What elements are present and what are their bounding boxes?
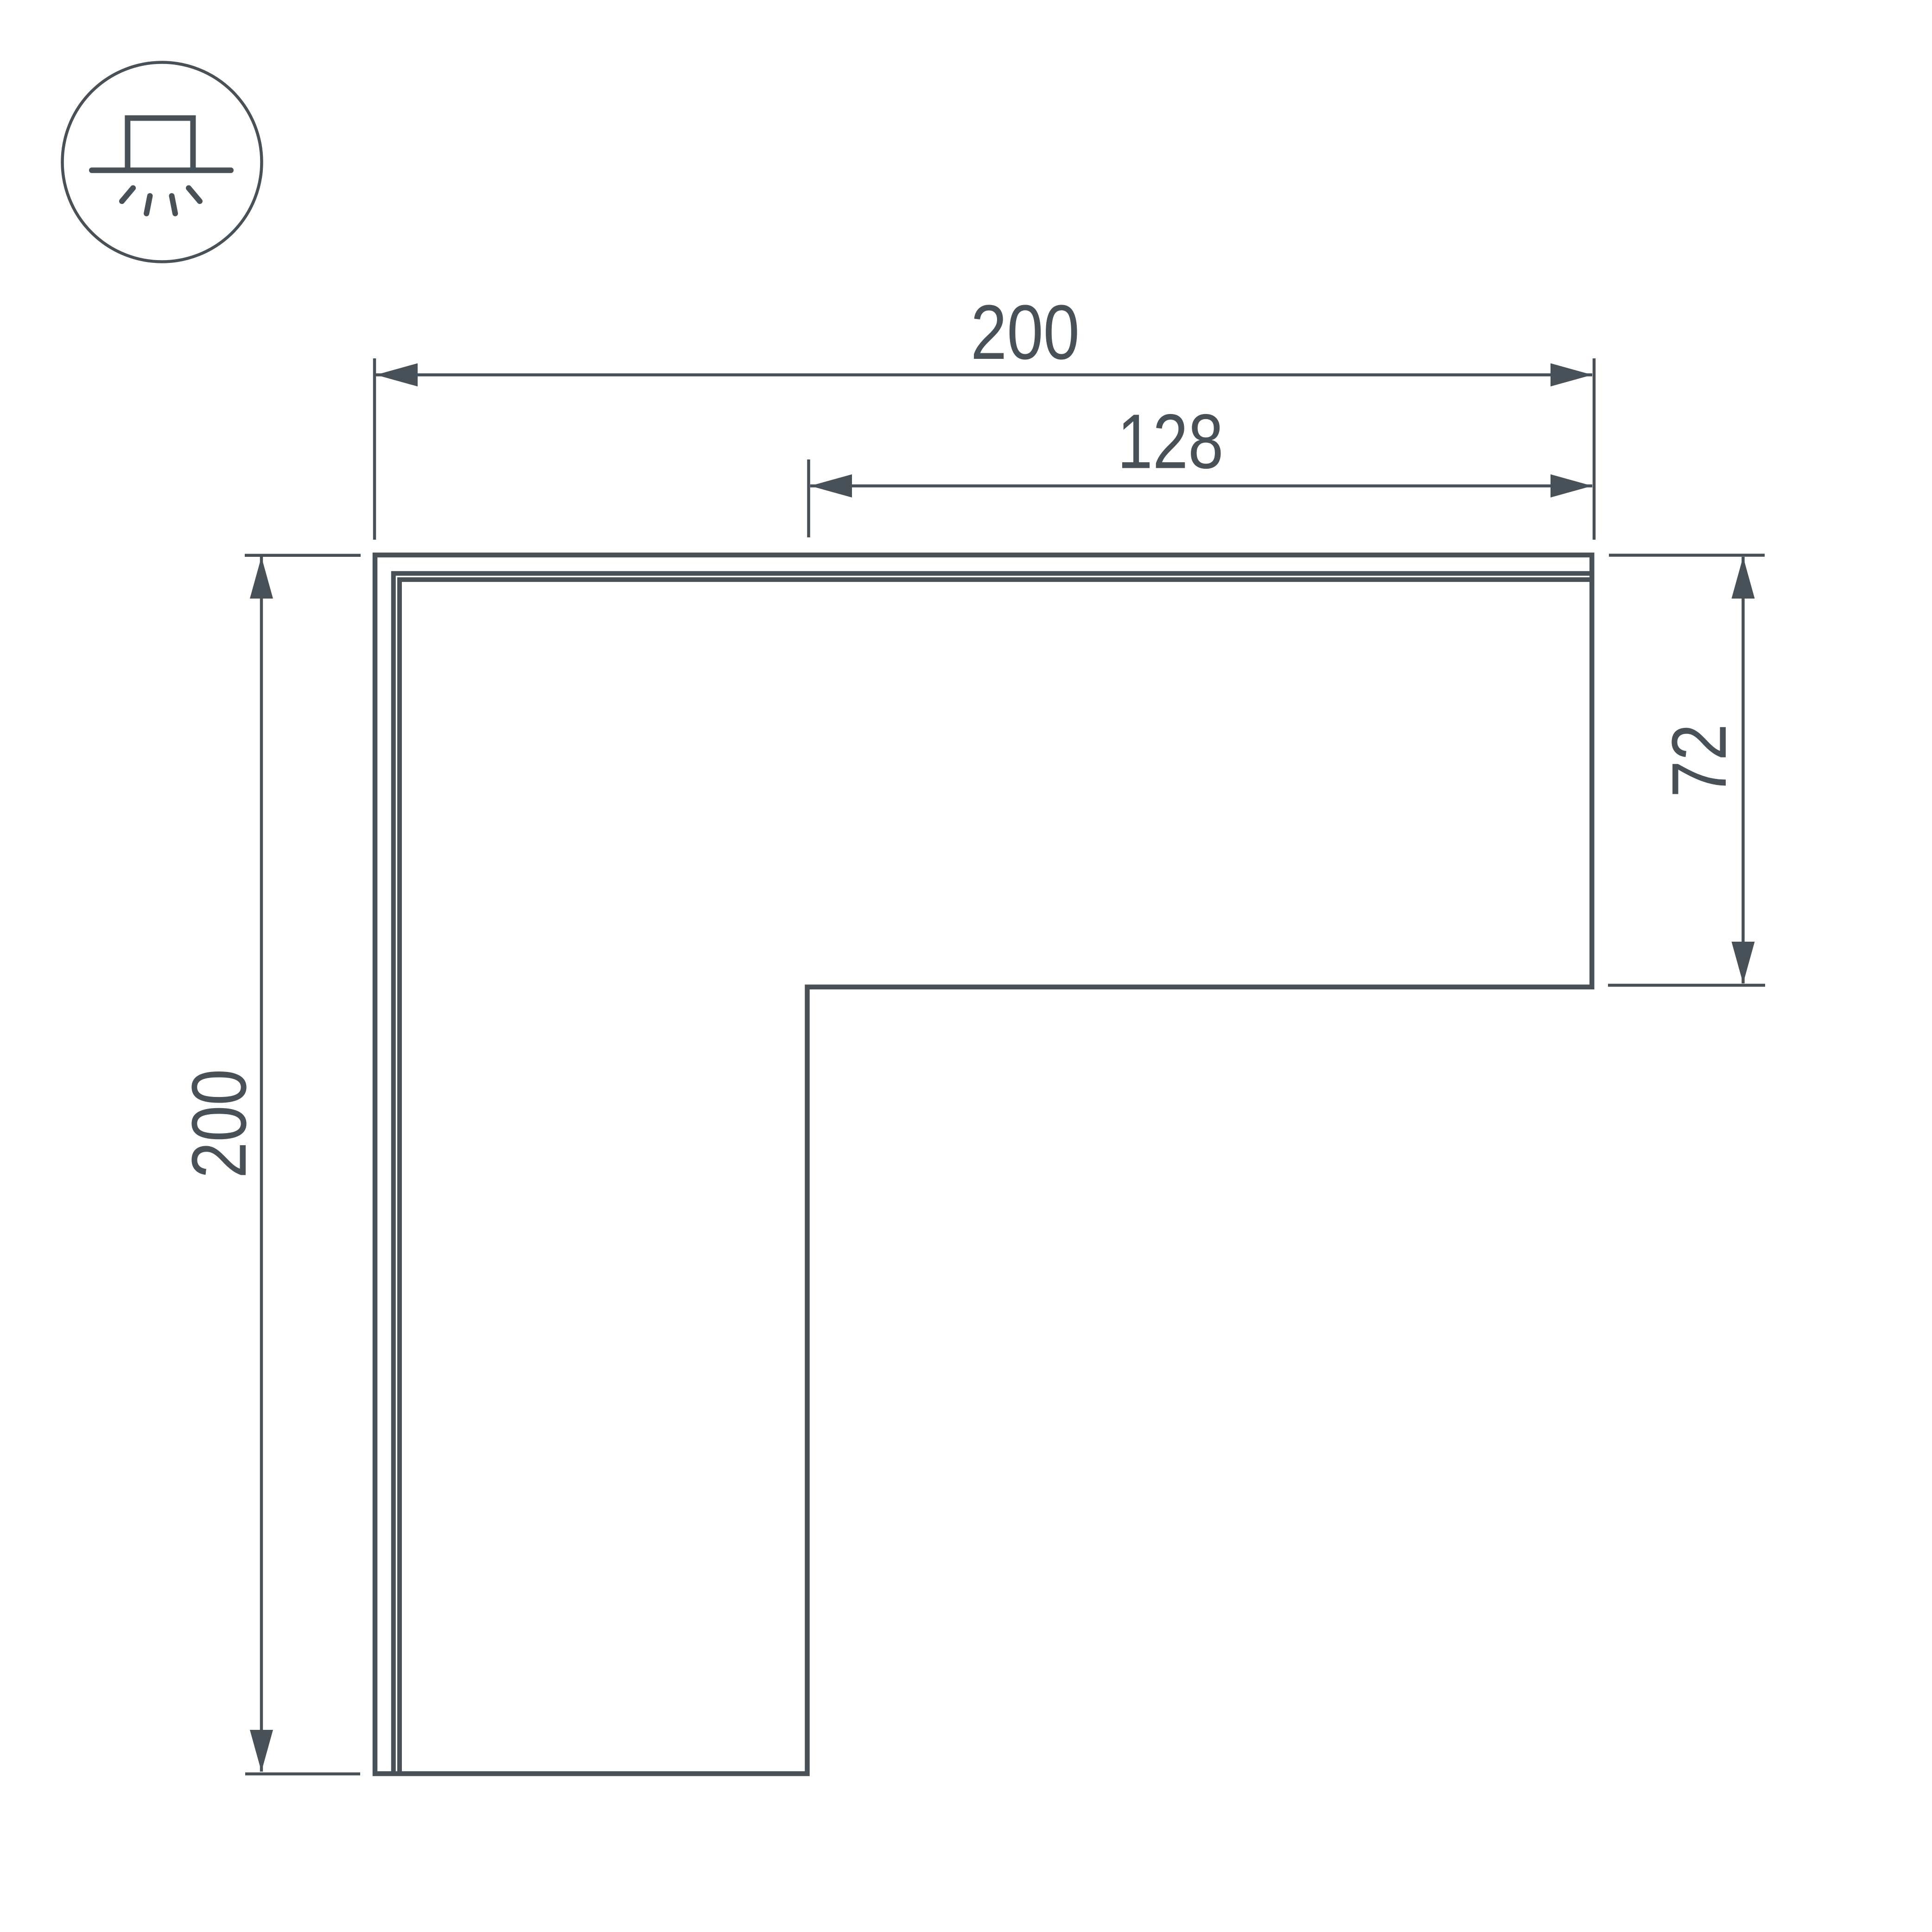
svg-text:72: 72 [1656,724,1742,797]
svg-text:200: 200 [176,1069,262,1179]
svg-text:128: 128 [1118,399,1224,485]
svg-text:200: 200 [971,289,1080,376]
